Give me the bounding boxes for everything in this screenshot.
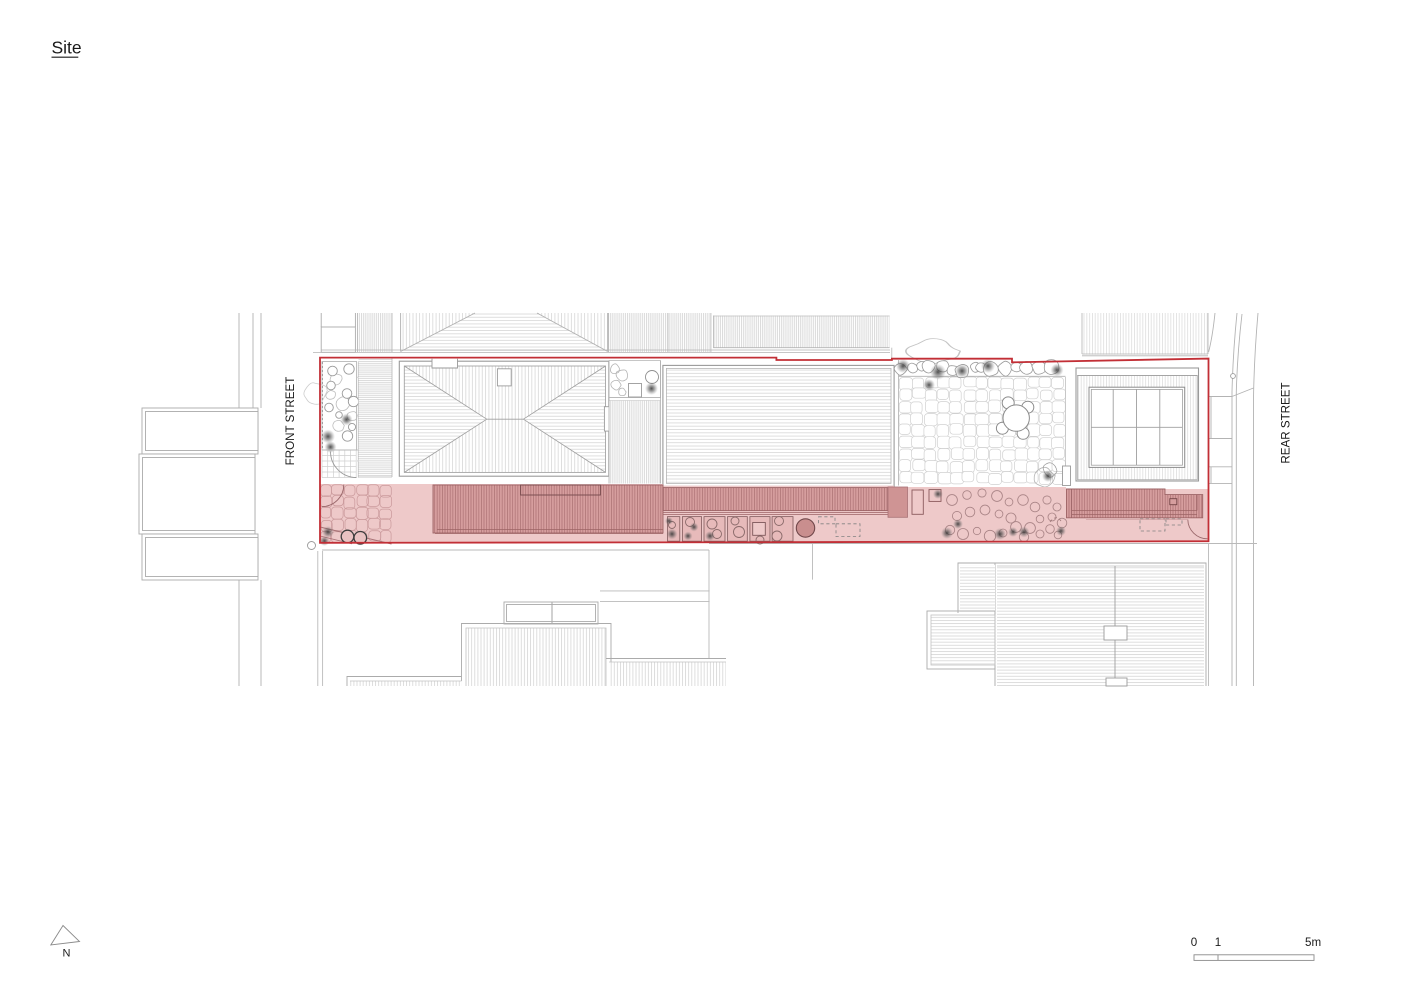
svg-text:REAR STREET: REAR STREET — [1280, 382, 1293, 463]
svg-text:Site: Site — [52, 38, 82, 58]
svg-text:FRONT STREET: FRONT STREET — [284, 377, 297, 466]
svg-text:5m: 5m — [1305, 936, 1321, 949]
svg-text:0: 0 — [1191, 936, 1197, 949]
svg-text:1: 1 — [1215, 936, 1221, 949]
svg-text:N: N — [63, 948, 71, 960]
